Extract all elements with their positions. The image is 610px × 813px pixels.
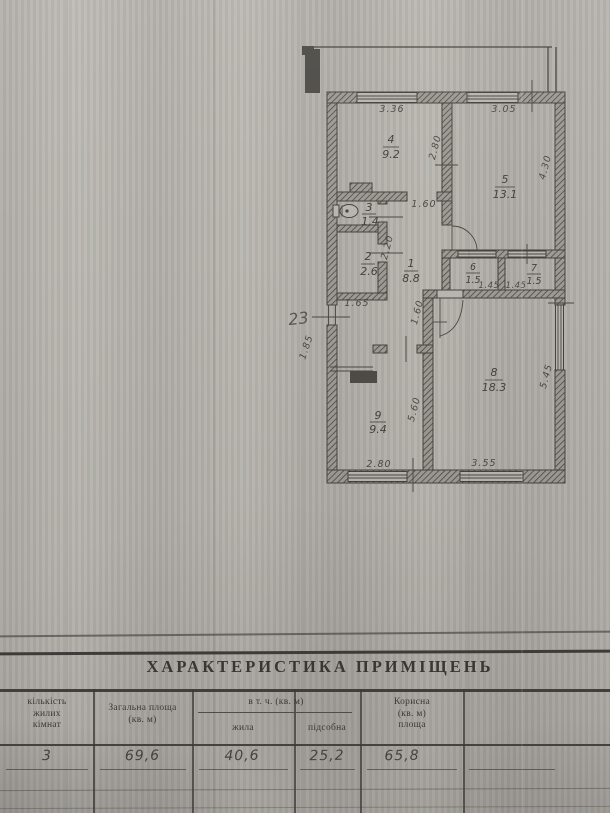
table-header-border [0, 744, 610, 746]
header-total-area: Загальна площа (кв. м) [95, 703, 190, 726]
room-7-number: 7 [531, 263, 537, 274]
value-auxiliary-area: 25,2 [294, 747, 360, 764]
cell-rule [300, 769, 355, 770]
room5-door [452, 226, 477, 251]
balcony-outline [302, 46, 556, 93]
dim-top-wall-right: 3.05 [491, 104, 516, 115]
window-top-right [467, 93, 518, 103]
dim-entry-side: 1.85 [298, 334, 316, 361]
value-living-area: 40,6 [192, 747, 292, 765]
window-top-left [357, 93, 417, 103]
room-6-number: 6 [470, 262, 476, 273]
cell-rule [100, 769, 186, 770]
dim-room8-width: 3.55 [471, 458, 496, 469]
header-auxiliary: підсобна [294, 723, 360, 735]
row-rule [0, 806, 610, 809]
dim-room8-side: 5.45 [538, 363, 555, 390]
characteristics-title: ХАРАКТЕРИСТИКА ПРИМІЩЕНЬ [90, 657, 550, 677]
dim-room2-width: 1.65 [344, 298, 369, 309]
header-including-group: в т. ч. (кв. м) [192, 697, 360, 709]
header-rooms-count-line3: кімнат [2, 720, 92, 732]
cell-rule [199, 769, 288, 770]
value-useful-area: 65,8 [362, 747, 442, 764]
apartment-number: 23 [287, 308, 309, 329]
divider-thick [0, 650, 610, 656]
window-bottom-left [348, 472, 407, 482]
header-useful-area-line1: Корисна [362, 697, 462, 709]
room-9-number: 9 [375, 409, 382, 422]
table-top-border [0, 689, 610, 692]
header-including-underline [198, 712, 352, 713]
room-8-area: 18.3 [482, 381, 507, 394]
window-bottom-right [460, 472, 523, 482]
scanned-floor-plan-page: 1 8.8 2 2.6 3 1.4 4 9.2 5 13.1 6 1.5 7 1… [0, 0, 610, 813]
dim-room9-width: 2.80 [366, 459, 391, 470]
value-total-area: 69,6 [95, 747, 190, 765]
header-useful-area-line2: (кв. м) [362, 709, 462, 721]
room-9-area: 9.4 [369, 423, 387, 436]
room-7-area: 1.5 [526, 276, 541, 287]
header-useful-area-line3: площа [362, 720, 462, 732]
value-rooms-count: 3 [2, 747, 92, 765]
table-col-line-5 [463, 689, 465, 813]
dim-hall-top-door: 1.60 [411, 199, 436, 210]
row-rule [0, 788, 610, 791]
dim-room6-width: 1.45 [479, 281, 500, 291]
dim-room7-width: 1.45 [506, 281, 527, 291]
room-8-number: 8 [491, 366, 498, 379]
header-living: жила [192, 723, 294, 735]
window-right [556, 305, 564, 370]
header-total-area-line1: Загальна площа [95, 703, 190, 715]
dim-room9-side: 5.60 [406, 396, 423, 423]
entrance-door-opening [327, 305, 337, 325]
room-5-area: 13.1 [493, 188, 518, 201]
room-1-area: 8.8 [402, 272, 420, 285]
floor-plan-drawing: 1 8.8 2 2.6 3 1.4 4 9.2 5 13.1 6 1.5 7 1… [0, 0, 610, 625]
room-3-number: 3 [366, 201, 373, 214]
room-4-number: 4 [388, 133, 395, 146]
dim-top-wall-left: 3.36 [379, 104, 404, 115]
room-1-number: 1 [408, 257, 415, 270]
dim-room5-side: 4.30 [537, 154, 554, 181]
header-total-area-line2: (кв. м) [95, 715, 190, 727]
header-rooms-count-line2: жилих [2, 709, 92, 721]
header-rooms-count-line1: кількість [2, 697, 92, 709]
room-5-number: 5 [502, 173, 509, 186]
cell-rule [6, 769, 88, 770]
room-3-area: 1.4 [361, 215, 379, 228]
room8-door [433, 290, 463, 338]
toilet-icon [333, 205, 358, 218]
header-useful-area: Корисна (кв. м) площа [362, 697, 462, 732]
room-2-area: 2.6 [360, 265, 378, 278]
cell-rule [469, 769, 555, 770]
divider-thin [0, 631, 610, 637]
room-2-number: 2 [365, 250, 372, 263]
cell-rule [367, 769, 457, 770]
header-rooms-count: кількість жилих кімнат [2, 697, 92, 732]
room-4-area: 9.2 [382, 148, 400, 161]
